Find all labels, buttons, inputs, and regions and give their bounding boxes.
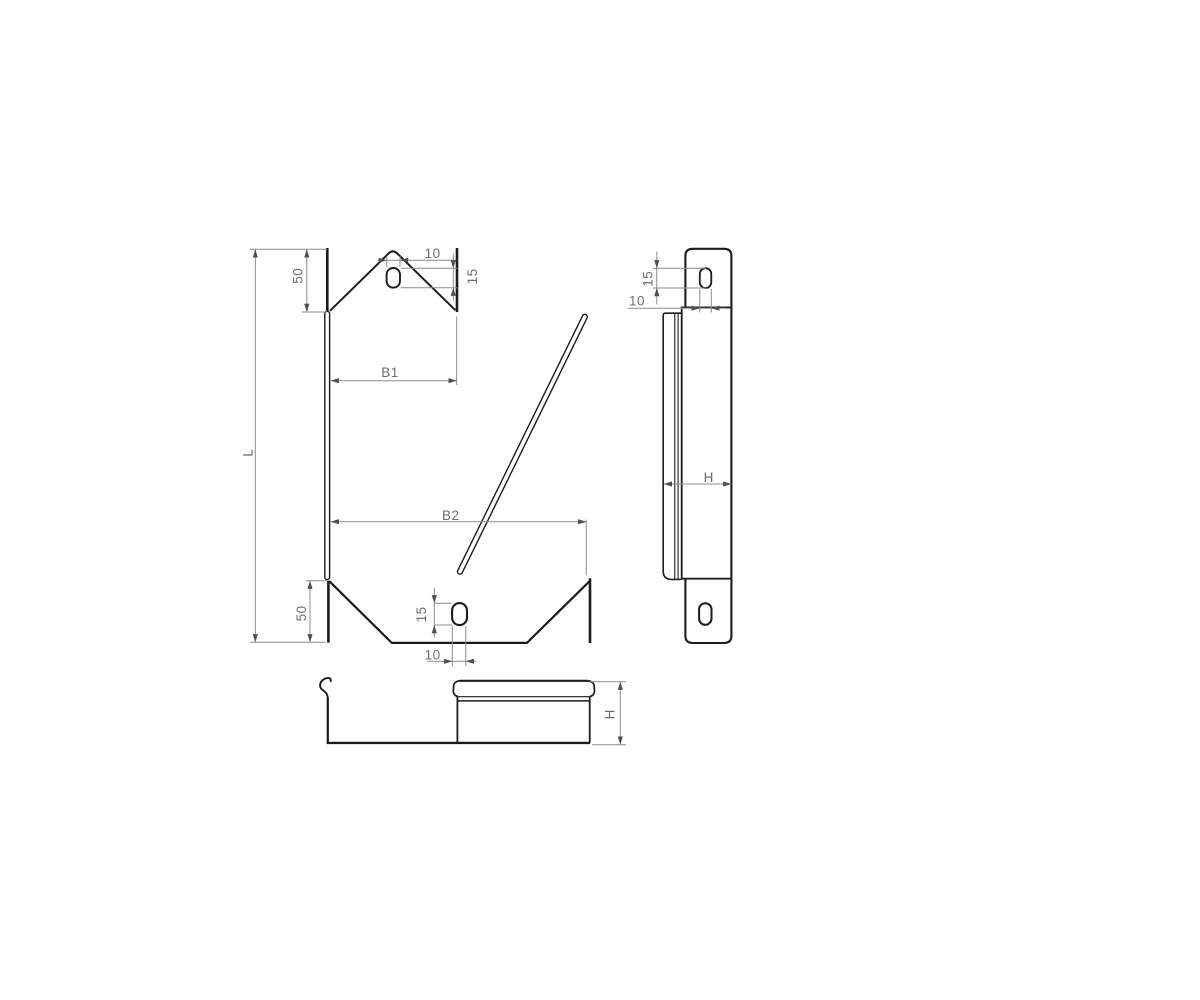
arrow-15-bottom-upper (432, 595, 437, 603)
arrow-side-10-left (692, 306, 700, 311)
dim-label-width-bottom: B2 (442, 508, 460, 523)
arrow-50-top-down (304, 304, 309, 312)
arrow-50-bottom-down (307, 634, 312, 642)
section-left-rolled-lip (320, 678, 331, 699)
dim-label-slot-height-bottom: 15 (414, 606, 429, 622)
side-rolled-edge-outline (663, 313, 682, 579)
arrow-L-top (253, 249, 258, 257)
dim-label-side-slot-height: 15 (641, 271, 656, 287)
dim-label-end-section-top: 50 (291, 268, 306, 284)
arrow-section-H-bottom (618, 737, 623, 745)
dim-label-end-section-bottom: 50 (294, 605, 309, 621)
arrow-B2-right (578, 519, 586, 524)
arrow-side-10-right (711, 306, 719, 311)
arrow-B1-left (331, 378, 339, 383)
dim-label-slot-width-top: 10 (425, 246, 441, 261)
side-bottom-slot-hole (699, 603, 711, 625)
arrow-15-top-upper (451, 260, 456, 268)
arrow-side-15-lower (654, 288, 659, 296)
dim-label-width-top: B1 (381, 365, 399, 380)
section-band-lip-left-end (453, 681, 460, 697)
section-view-dimensions: H (591, 682, 626, 745)
technical-drawing-page: L 50 50 B1 B2 10 (0, 0, 1200, 1000)
dim-label-slot-width-bottom: 10 (425, 647, 441, 662)
arrow-50-top-up (304, 249, 309, 257)
front-bottom-end-tab (329, 581, 589, 643)
dim-label-slot-height-top: 15 (465, 268, 480, 284)
dim-label-side-slot-width: 10 (629, 293, 645, 308)
section-view (320, 678, 594, 743)
arrow-B1-right (449, 378, 457, 383)
arrow-10-bottom-right (466, 659, 474, 664)
arrow-L-bottom (253, 634, 258, 642)
arrow-B2-left (331, 519, 339, 524)
dim-label-section-height: H (603, 709, 618, 719)
arrow-10-bottom-left (444, 659, 452, 664)
front-left-rolled-edge (325, 311, 330, 579)
dim-label-side-height: H (704, 470, 714, 485)
front-view (325, 248, 590, 643)
arrow-section-H-top (618, 682, 623, 690)
arrow-50-bottom-up (307, 581, 312, 589)
arrow-side-H-left (664, 481, 672, 486)
front-view-dimensions: L 50 50 B1 B2 10 (241, 246, 587, 666)
side-top-slot-hole (700, 268, 712, 288)
front-top-slot-hole (387, 268, 400, 288)
arrow-side-H-right (723, 481, 731, 486)
front-bottom-slot-hole (452, 603, 467, 625)
drawing-svg: L 50 50 B1 B2 10 (0, 0, 1200, 1000)
arrow-side-15-upper (654, 260, 659, 268)
side-view-dimensions: 15 10 H (628, 252, 731, 487)
section-band-lip-right-end (588, 681, 595, 697)
arrow-15-top-lower (451, 288, 456, 296)
dim-label-length: L (241, 449, 256, 457)
arrow-15-bottom-lower (432, 625, 437, 633)
front-slanted-rolled-edge (457, 314, 589, 575)
